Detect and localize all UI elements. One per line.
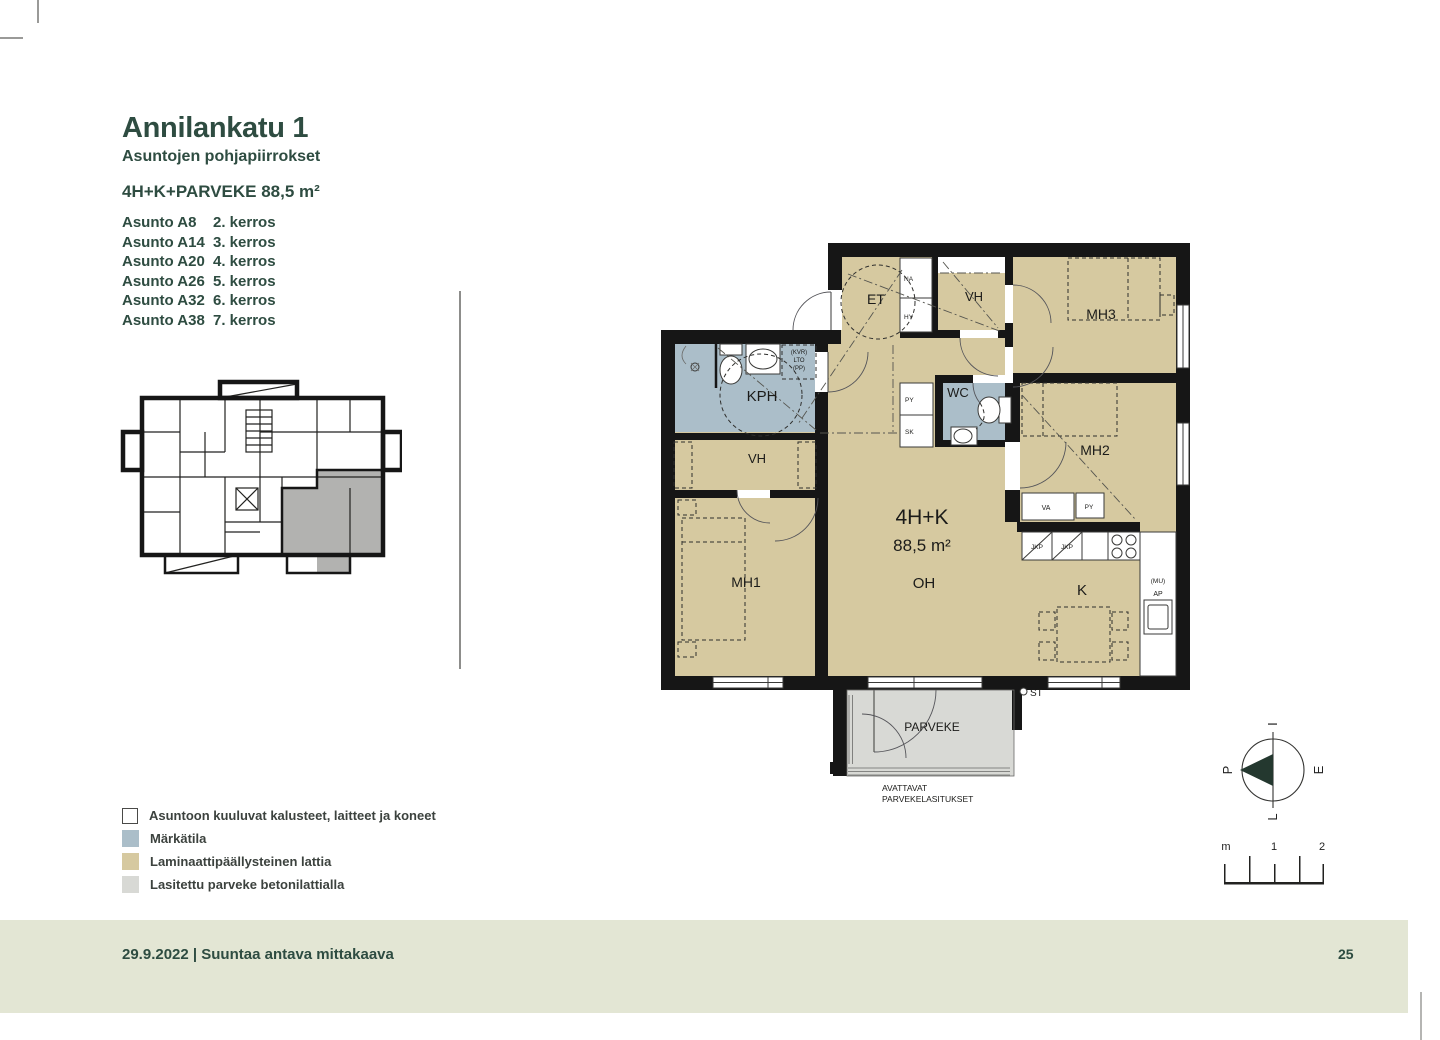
page-number: 25 [1338,946,1354,962]
legend-item: Asuntoon kuuluvat kalusteet, laitteet ja… [122,804,436,827]
room-label-oh: OH [913,575,936,592]
window-kitchen [1048,677,1120,688]
label-st: ST [1030,688,1043,699]
apartment-name: Asunto A32 [122,291,213,311]
crop-mark-top-left-v [37,0,39,23]
scale-mid: 1 [1271,841,1277,853]
page-title: Annilankatu 1 [122,112,462,145]
wc-washbasin [954,429,972,443]
apartment-type-label: 4H+K [895,506,948,529]
apartment-name: Asunto A20 [122,252,213,272]
room-label-wc: WC [947,385,969,400]
balcony-note-line1: AVATTAVAT [882,783,927,793]
apartment-floor: 4. kerros [213,252,276,272]
legend-swatch-furniture [122,808,138,824]
kitchen-counter [1140,532,1176,676]
st-marker [1020,688,1027,695]
compass-label-south: E [1311,765,1326,774]
label-jkp1: JKP [1031,544,1043,551]
legend-label: Märkätila [150,831,206,846]
apartment-name: Asunto A38 [122,311,213,331]
legend-item: Lasitettu parveke betonilattialla [122,873,436,896]
legend: Asuntoon kuuluvat kalusteet, laitteet ja… [122,804,436,896]
brochure-page: Annilankatu 1 Asuntojen pohjapiirrokset … [0,0,1440,1040]
apartment-list-item: Asunto A204. kerros [122,252,462,272]
crop-mark-bottom-right-v [1420,992,1422,1040]
apartment-list-item: Asunto A387. kerros [122,311,462,331]
label-py: PY [905,397,914,404]
apartment-area-label: 88,5 m² [893,536,951,555]
building-overview-plan [120,372,402,584]
legend-swatch-balcony [122,876,139,893]
apartment-floor: 2. kerros [213,213,276,233]
apartment-name: Asunto A8 [122,213,213,233]
label-py2: PY [1085,504,1094,511]
room-label-mh2: MH2 [1080,442,1110,458]
legend-item: Laminaattipäällysteinen lattia [122,850,436,873]
room-label-vh-top: VH [965,289,983,304]
legend-swatch-laminate [122,853,139,870]
label-pp: (PP) [793,366,805,372]
footer-band [0,920,1408,1013]
room-label-et: ET [867,291,885,307]
label-na: NA [904,276,914,283]
footer-text: 29.9.2022 | Suuntaa antava mittakaava [122,946,394,963]
legend-label: Asuntoon kuuluvat kalusteet, laitteet ja… [149,808,436,823]
apartment-list-item: Asunto A82. kerros [122,213,462,233]
apartment-floor: 7. kerros [213,311,276,331]
legend-label: Laminaattipäällysteinen lattia [150,854,331,869]
apartment-list-item: Asunto A143. kerros [122,233,462,253]
label-kvr: (KVR) [791,350,807,356]
apartment-floor: 3. kerros [213,233,276,253]
compass-label-north: P [1220,766,1235,775]
apartment-floor: 5. kerros [213,272,276,292]
legend-swatch-wetroom [122,830,139,847]
compass-label-west: L [1265,813,1280,820]
room-label-mh3: MH3 [1086,306,1116,322]
apartment-name: Asunto A14 [122,233,213,253]
scale-end: 2 [1319,841,1325,853]
room-label-vh-lower: VH [748,451,766,466]
window-balcony-door [868,677,982,688]
apartment-floor: 6. kerros [213,291,276,311]
label-lto: LTO [793,358,804,364]
room-label-kitchen: K [1077,582,1087,599]
wc-toilet [978,397,1000,423]
label-va: VA [1042,505,1051,512]
balcony-label: PARVEKE [904,720,960,734]
room-label-kph: KPH [747,388,778,405]
page-subtitle: Asuntojen pohjapiirrokset [122,148,462,166]
legend-label: Lasitettu parveke betonilattialla [150,877,344,892]
north-arrow [1240,754,1273,786]
apartment-list: Asunto A82. kerros Asunto A143. kerros A… [122,213,462,330]
window-mh3 [1177,305,1189,368]
floor-plan: ET VH MH3 WC KPH VH MH1 MH2 4H+K 88,5 m²… [658,240,1193,810]
apartment-list-item: Asunto A265. kerros [122,272,462,292]
room-label-mh1: MH1 [731,574,761,590]
toilet-tank [720,344,742,355]
bulkhead [938,257,1005,273]
apartment-list-item: Asunto A326. kerros [122,291,462,311]
label-sk: SK [905,429,914,436]
header-block: Annilankatu 1 Asuntojen pohjapiirrokset … [122,112,462,330]
window-mh2 [1177,423,1189,485]
balcony-note-line2: PARVEKELASITUKSET [882,794,973,804]
vertical-divider [459,291,461,669]
scale-unit: m [1222,841,1231,853]
washbasin [749,349,777,369]
label-hy: HY [904,314,914,321]
scale-bar: m 1 2 [1222,838,1332,888]
label-ap: AP [1153,591,1163,598]
label-jkp2: JKP [1061,544,1073,551]
label-mu: (MU) [1151,578,1165,585]
apartment-type-heading: 4H+K+PARVEKE 88,5 m² [122,182,462,202]
compass-label-east: I [1265,722,1280,726]
window-mh1 [713,677,783,688]
wc-toilet-tank [999,397,1011,423]
compass-rose: P I E L [1218,714,1328,822]
crop-mark-top-left-h [0,37,23,39]
apartment-name: Asunto A26 [122,272,213,292]
legend-item: Märkätila [122,827,436,850]
